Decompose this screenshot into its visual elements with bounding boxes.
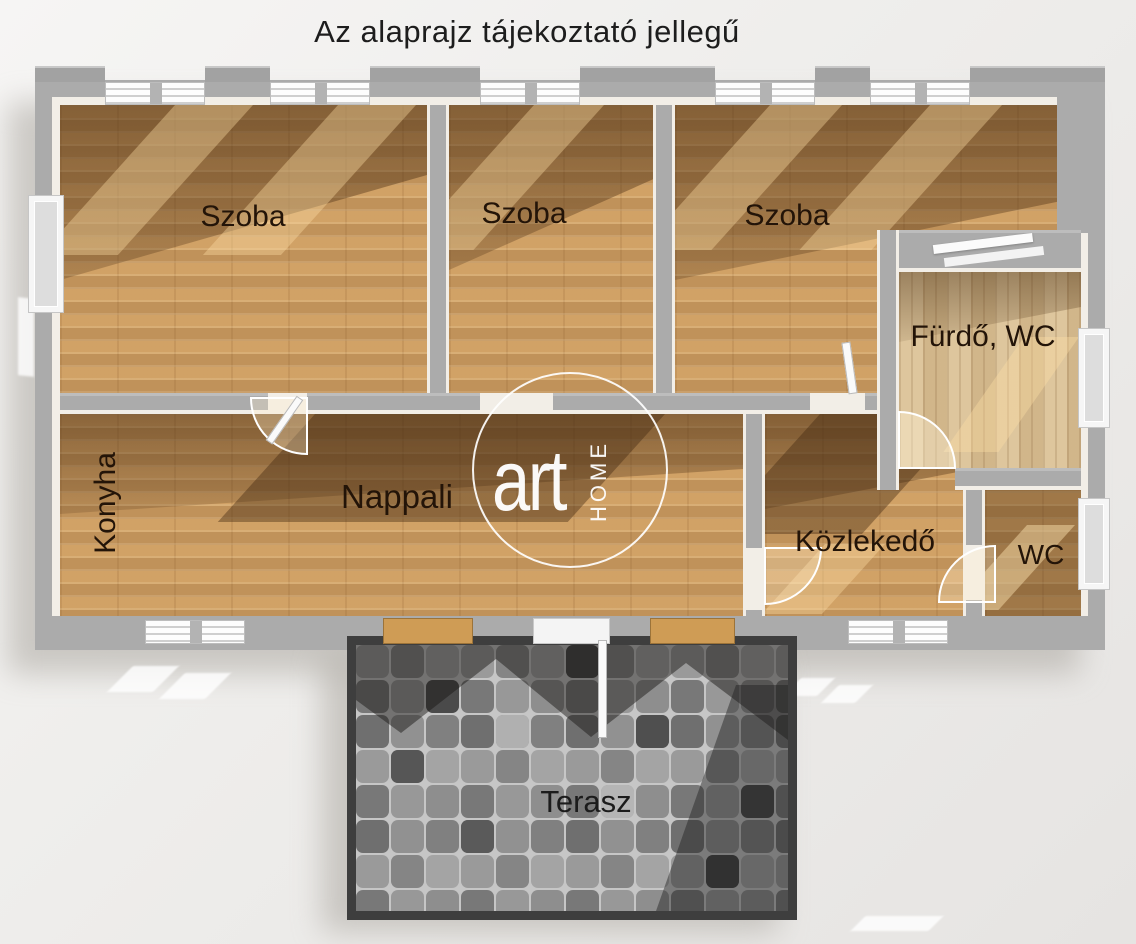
sunlight-patch	[943, 337, 1079, 452]
room-szoba-1	[60, 105, 427, 393]
light-reflection-4	[821, 685, 873, 703]
wall-furdo-left	[877, 230, 899, 490]
window-mullion	[190, 621, 202, 643]
room-label-szoba-3: Szoba	[744, 199, 829, 233]
wall-main-horizontal	[743, 393, 810, 414]
terrace-tiles	[356, 645, 788, 911]
window-mullion	[915, 83, 927, 104]
wall-furdo-bottom	[955, 468, 1081, 490]
window-glass	[1084, 334, 1104, 422]
wall-szoba2-szoba3	[653, 105, 675, 393]
floor-plan: Az alaprajz tájekoztató jellegű	[0, 0, 1136, 944]
window-top-5	[870, 82, 970, 105]
room-label-nappali: Nappali	[341, 478, 453, 516]
window-glass	[34, 201, 58, 307]
room-label-kozlekedo: Közlekedő	[795, 525, 935, 559]
wall-bottom-right	[795, 616, 1105, 650]
watermark-art: art	[492, 438, 565, 524]
room-label-konyha: Konyha	[89, 452, 123, 554]
window-right-wc	[1078, 498, 1110, 590]
shadow-patch	[60, 105, 427, 280]
disclaimer-title: Az alaprajz tájekoztató jellegű	[0, 14, 1054, 50]
window-mullion	[893, 621, 905, 643]
wall-pillar-cap	[205, 66, 270, 82]
light-reflection-6	[851, 916, 944, 931]
window-mullion	[525, 83, 537, 104]
wall-pillar-cap	[35, 66, 105, 82]
window-mullion	[150, 83, 162, 104]
window-top-2	[270, 82, 370, 105]
shadow-patch	[449, 105, 653, 270]
window-top-1	[105, 82, 205, 105]
window-bottom-right	[848, 620, 948, 644]
wall-main-horizontal	[307, 393, 480, 414]
room-label-wc: WC	[1018, 539, 1065, 571]
window-mullion	[760, 83, 772, 104]
sunlight-patch	[799, 105, 1002, 250]
wall-szoba1-szoba2	[427, 105, 449, 393]
wall-furdo-top	[877, 230, 1081, 272]
wall-pillar-cap	[580, 66, 715, 82]
door-leaf-terrace	[598, 640, 607, 738]
wall-kozlekedo-wc	[963, 490, 985, 545]
window-mullion	[315, 83, 327, 104]
door-arc-furdo	[899, 410, 957, 468]
door-arc-wc	[937, 544, 995, 602]
window-right-furdo	[1078, 328, 1110, 428]
door-threshold-wood-2	[650, 618, 735, 644]
wall-main-horizontal	[60, 393, 268, 414]
window-top-3	[480, 82, 580, 105]
room-label-furdo-wc: Fürdő, WC	[910, 320, 1055, 354]
light-reflection-2	[159, 673, 231, 699]
watermark-home: HOME	[588, 428, 610, 522]
wall-pillar-cap	[370, 66, 480, 82]
door-threshold-wood-1	[383, 618, 473, 644]
room-label-szoba-1: Szoba	[200, 200, 285, 234]
wall-pillar-cap	[970, 66, 1105, 82]
terrace: Terasz	[347, 636, 797, 920]
window-glass	[1084, 504, 1104, 584]
window-top-4	[715, 82, 815, 105]
window-bottom-left	[145, 620, 245, 644]
wall-nappali-kozlekedo	[743, 414, 765, 548]
room-szoba-2	[449, 105, 653, 393]
wall-pillar-cap	[815, 66, 870, 82]
room-label-terasz: Terasz	[540, 784, 631, 820]
window-left	[28, 195, 64, 313]
wall-corner-block	[1057, 80, 1105, 233]
room-label-szoba-2: Szoba	[481, 197, 566, 231]
